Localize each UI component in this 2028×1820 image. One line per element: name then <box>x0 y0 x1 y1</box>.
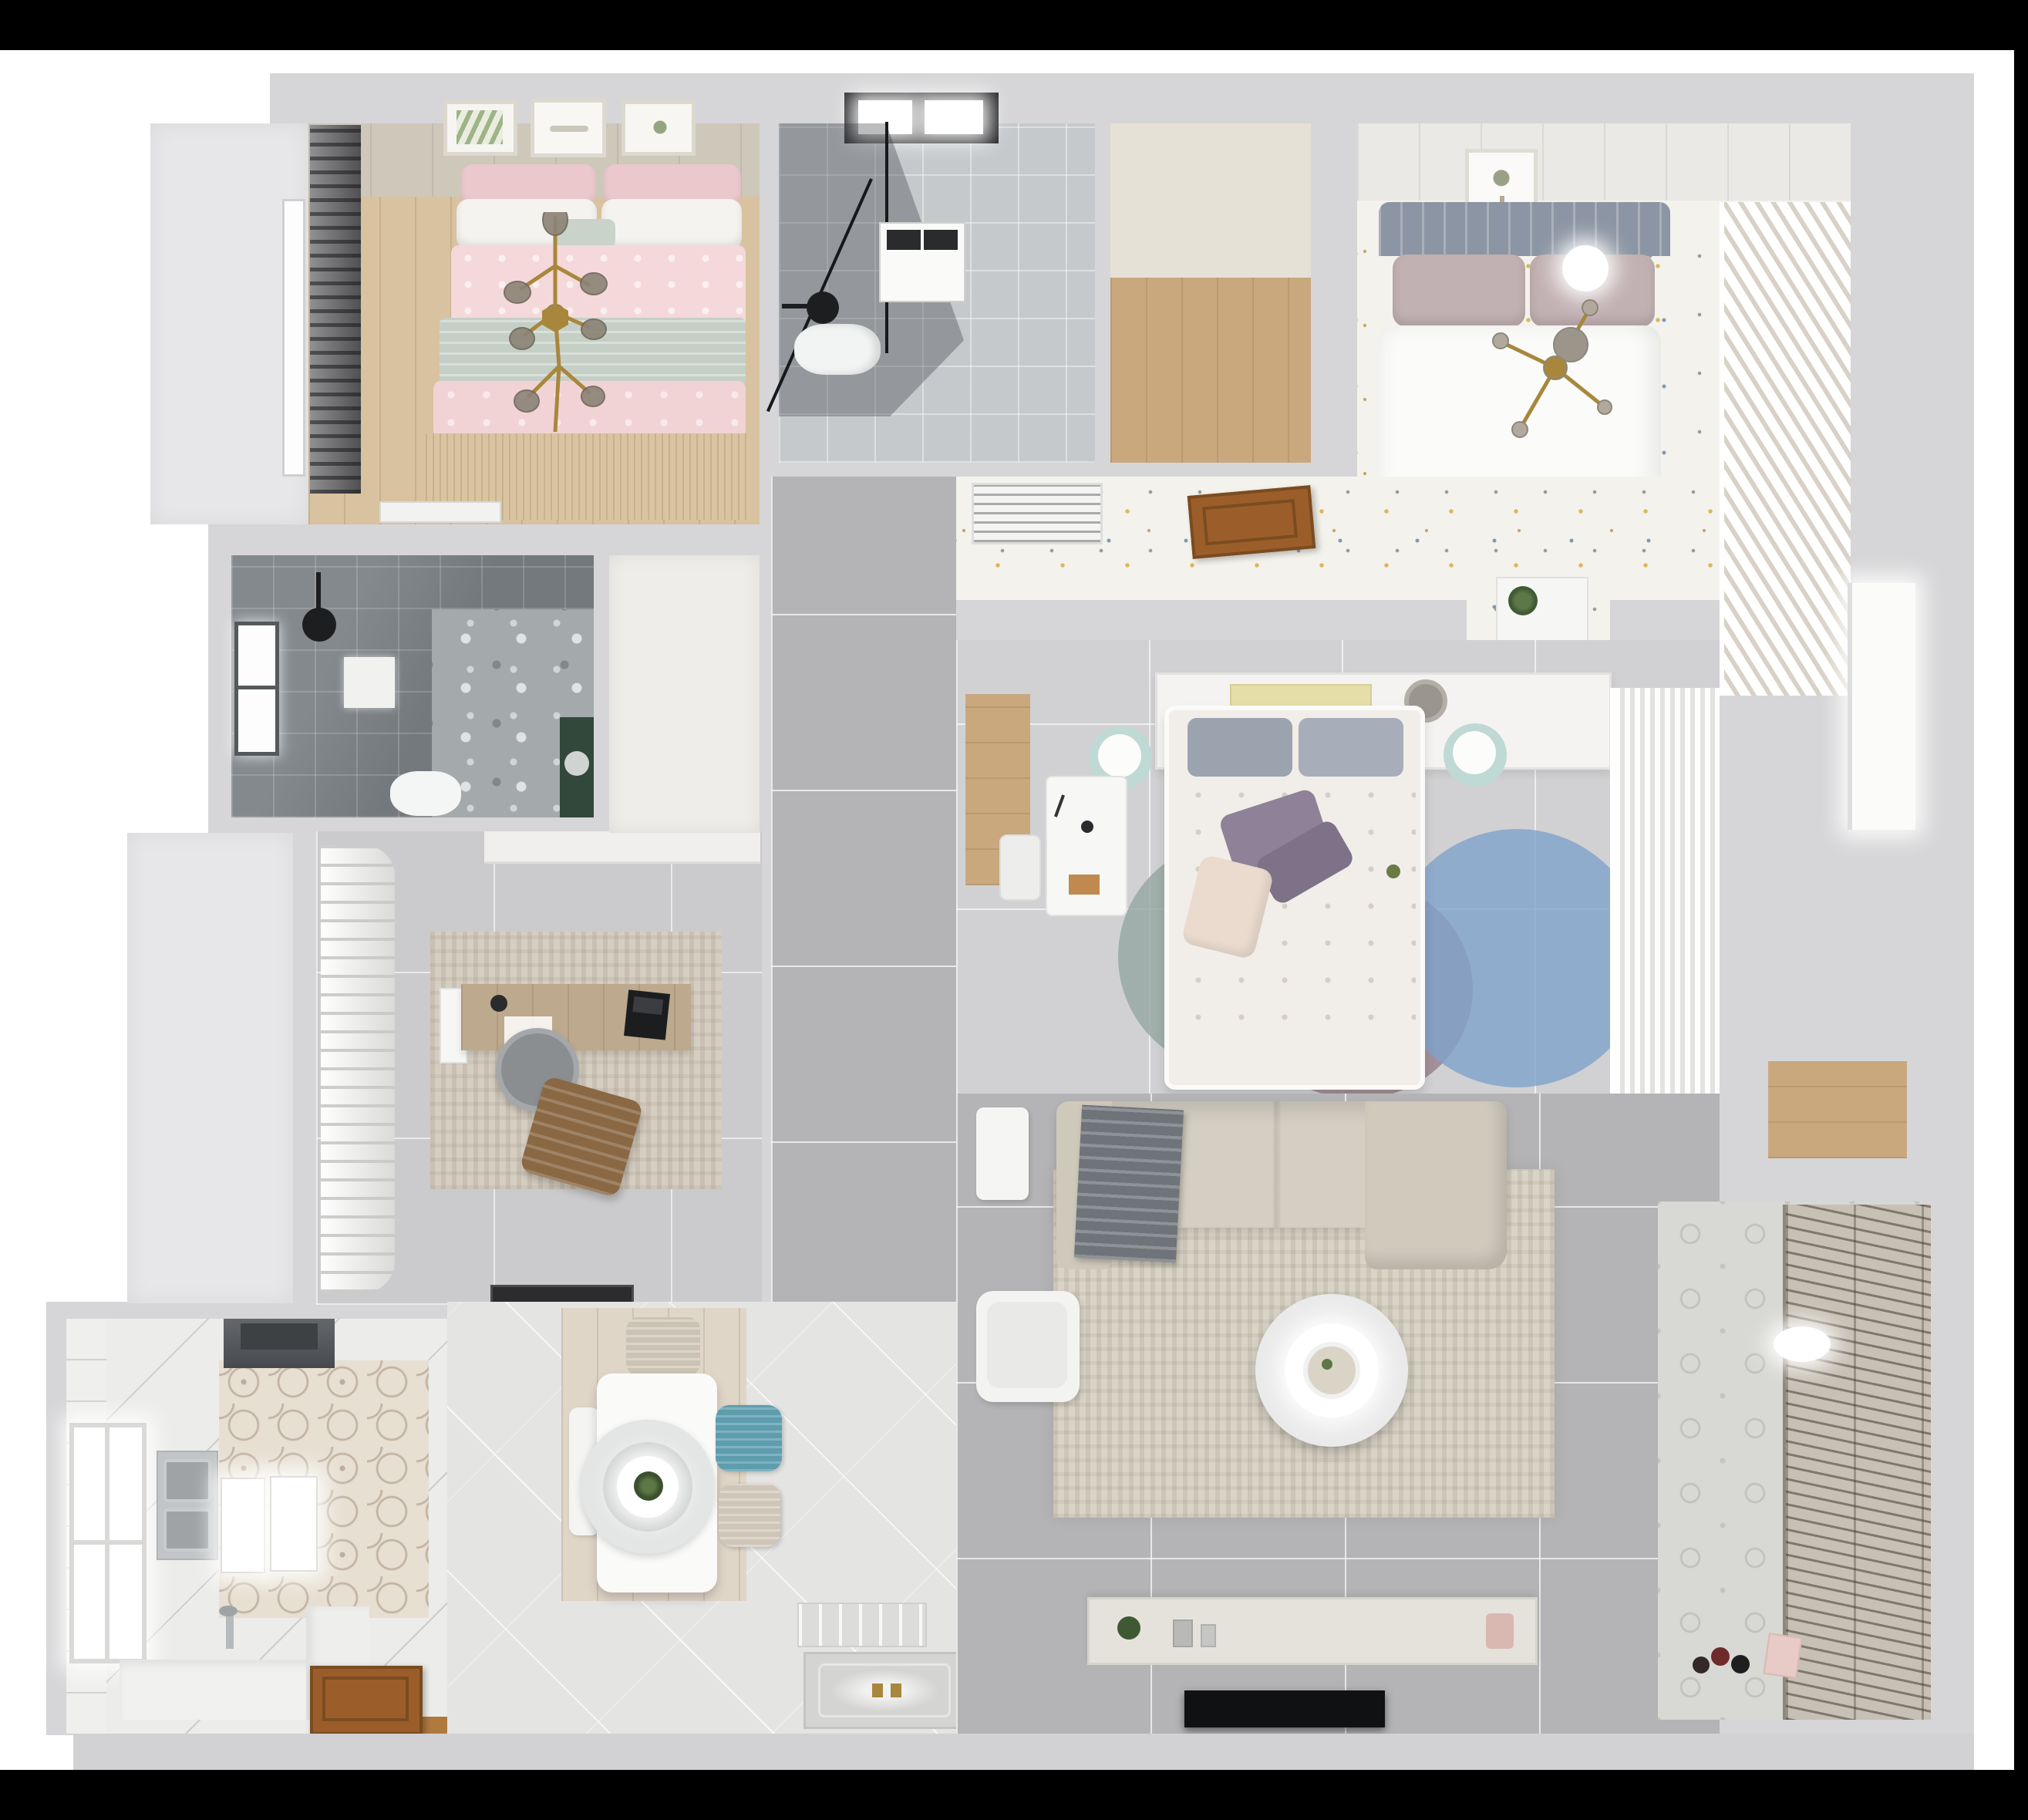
gold-cross-chandelier <box>1484 297 1627 440</box>
bedroom2-ceiling-light <box>1562 245 1609 292</box>
washer-controls-right <box>924 230 958 250</box>
right-niche-wood-shelf <box>1768 1061 1907 1158</box>
door-panel <box>1202 499 1298 545</box>
kitchen-window-rail <box>74 1540 142 1545</box>
study-desk-mug <box>490 995 507 1012</box>
kitchen-faucet-head <box>219 1606 237 1616</box>
shower-head <box>807 292 839 324</box>
mat-gold-handle-left <box>872 1684 883 1697</box>
dining-plant-centerpiece <box>634 1471 663 1501</box>
rug-circle-blue <box>1388 829 1646 1087</box>
dining-chair-top <box>626 1317 700 1376</box>
shower-arm <box>782 304 810 308</box>
dining-chair-teal <box>716 1405 782 1471</box>
tv-panel <box>1184 1690 1385 1727</box>
hall-wall-left <box>956 600 1467 642</box>
side-table-top-right <box>1453 731 1496 774</box>
mat-gold-handle-right <box>891 1684 901 1697</box>
bedroom3-bed <box>1164 706 1425 1090</box>
console-frame-1 <box>1173 1619 1193 1647</box>
desk-inkpot <box>1081 821 1093 833</box>
kitchen-glow-panel-right <box>270 1476 318 1572</box>
washer-controls-left <box>887 230 921 250</box>
balcony-shoes-cluster <box>1691 1643 1756 1681</box>
bedroom3-desk <box>1046 776 1127 916</box>
balcony-ceiling-lamp <box>1774 1326 1831 1362</box>
walkin-wood-floor <box>1110 278 1311 463</box>
bed3-pillow-right <box>1299 718 1403 777</box>
side-table-top-left <box>1098 734 1141 777</box>
kitchen-window <box>69 1423 147 1663</box>
kitchen-counter-bottom <box>120 1660 311 1720</box>
patterned-doormat <box>797 1603 927 1647</box>
balcony-pink-box <box>1763 1633 1802 1679</box>
east-open-door <box>1848 583 1915 830</box>
art-frame-script <box>531 99 606 157</box>
bedroom2-headboard <box>1379 202 1670 256</box>
tv-console <box>1087 1597 1538 1665</box>
study-laptop <box>624 989 670 1040</box>
green-vanity <box>560 717 594 817</box>
art-script-line <box>550 126 588 132</box>
living-side-table <box>976 1107 1029 1200</box>
art-frame-botanical <box>443 100 517 156</box>
entry-door <box>310 1666 423 1735</box>
console-plant <box>1508 586 1538 615</box>
shoe-2 <box>1711 1647 1730 1666</box>
console-pink-decor <box>1486 1613 1514 1649</box>
console-plant-pot <box>1117 1616 1140 1640</box>
laptop-screen <box>632 996 663 1015</box>
hall-wall-right <box>1610 600 1720 642</box>
bathroom2-shower-head <box>302 608 336 642</box>
skylight-glass-right <box>925 100 983 134</box>
console-frame-2 <box>1201 1624 1216 1647</box>
sink-basin-top <box>163 1459 211 1502</box>
shoe-1 <box>1693 1657 1710 1673</box>
bed3-pillow-left <box>1187 718 1292 777</box>
mat-ornament <box>818 1663 951 1717</box>
ornate-entry-mat <box>803 1652 965 1729</box>
bathroom2-shower-pipe <box>316 572 321 612</box>
living-armchair <box>976 1291 1080 1402</box>
hood-vent <box>241 1323 318 1350</box>
kitchen-faucet <box>226 1612 234 1649</box>
desk-tray <box>1069 875 1100 895</box>
corridor-floor <box>771 477 956 1319</box>
kitchen-sink-unit <box>157 1451 218 1560</box>
ac-vent <box>972 483 1103 544</box>
bedroom1-dresser <box>379 501 501 523</box>
study-curtains <box>321 845 395 1293</box>
balcony-blinds <box>1783 1205 1931 1720</box>
sofa-gray-throw <box>1074 1105 1184 1263</box>
art-leaves <box>456 110 503 144</box>
bathroom2-toilet <box>390 771 461 816</box>
open-wood-door <box>1187 485 1316 559</box>
washing-machine <box>879 222 965 302</box>
study-cabinet-band <box>484 831 760 864</box>
bedroom1-window <box>282 199 305 477</box>
vanity-basin <box>564 751 589 776</box>
coffee-table-plant <box>1322 1359 1332 1370</box>
coffee-table-inner <box>1303 1342 1360 1399</box>
bedroom2-ceiling-strip <box>1357 123 1851 201</box>
bed3-green-sprig <box>1386 865 1400 878</box>
shoe-3 <box>1731 1655 1750 1673</box>
gold-branch-chandelier <box>474 212 636 436</box>
bedroom2-louvered-wardrobe <box>1720 202 1851 696</box>
desk-pen <box>1054 794 1065 817</box>
entry-door-panel <box>322 1677 409 1721</box>
art-frame-sprig <box>622 100 696 156</box>
hall-console <box>1496 577 1588 642</box>
bedroom1-curtain <box>310 125 361 494</box>
armchair-cushion <box>987 1302 1067 1388</box>
art-sprig <box>648 115 672 146</box>
bathroom2-window-mullion <box>238 686 275 689</box>
floor-plan-render <box>0 0 2028 1820</box>
west-study-pocket <box>127 833 293 1303</box>
exterior-walkway-band <box>73 1734 1974 1770</box>
dining-chair-bottom <box>719 1484 780 1547</box>
bedroom3-sheer-wardrobe <box>1610 688 1720 1097</box>
range-hood <box>224 1319 335 1368</box>
sink-basin-bottom <box>163 1508 211 1552</box>
side-table-mint-right <box>1444 723 1507 787</box>
shower-tray <box>344 657 395 708</box>
toilet <box>794 324 881 375</box>
closet-hall <box>609 555 760 833</box>
bathroom2-window <box>234 622 279 756</box>
kitchen-glow-panel-left <box>221 1478 265 1573</box>
sofa-chaise <box>1365 1101 1507 1269</box>
bedroom3-desk-chair <box>999 834 1041 901</box>
